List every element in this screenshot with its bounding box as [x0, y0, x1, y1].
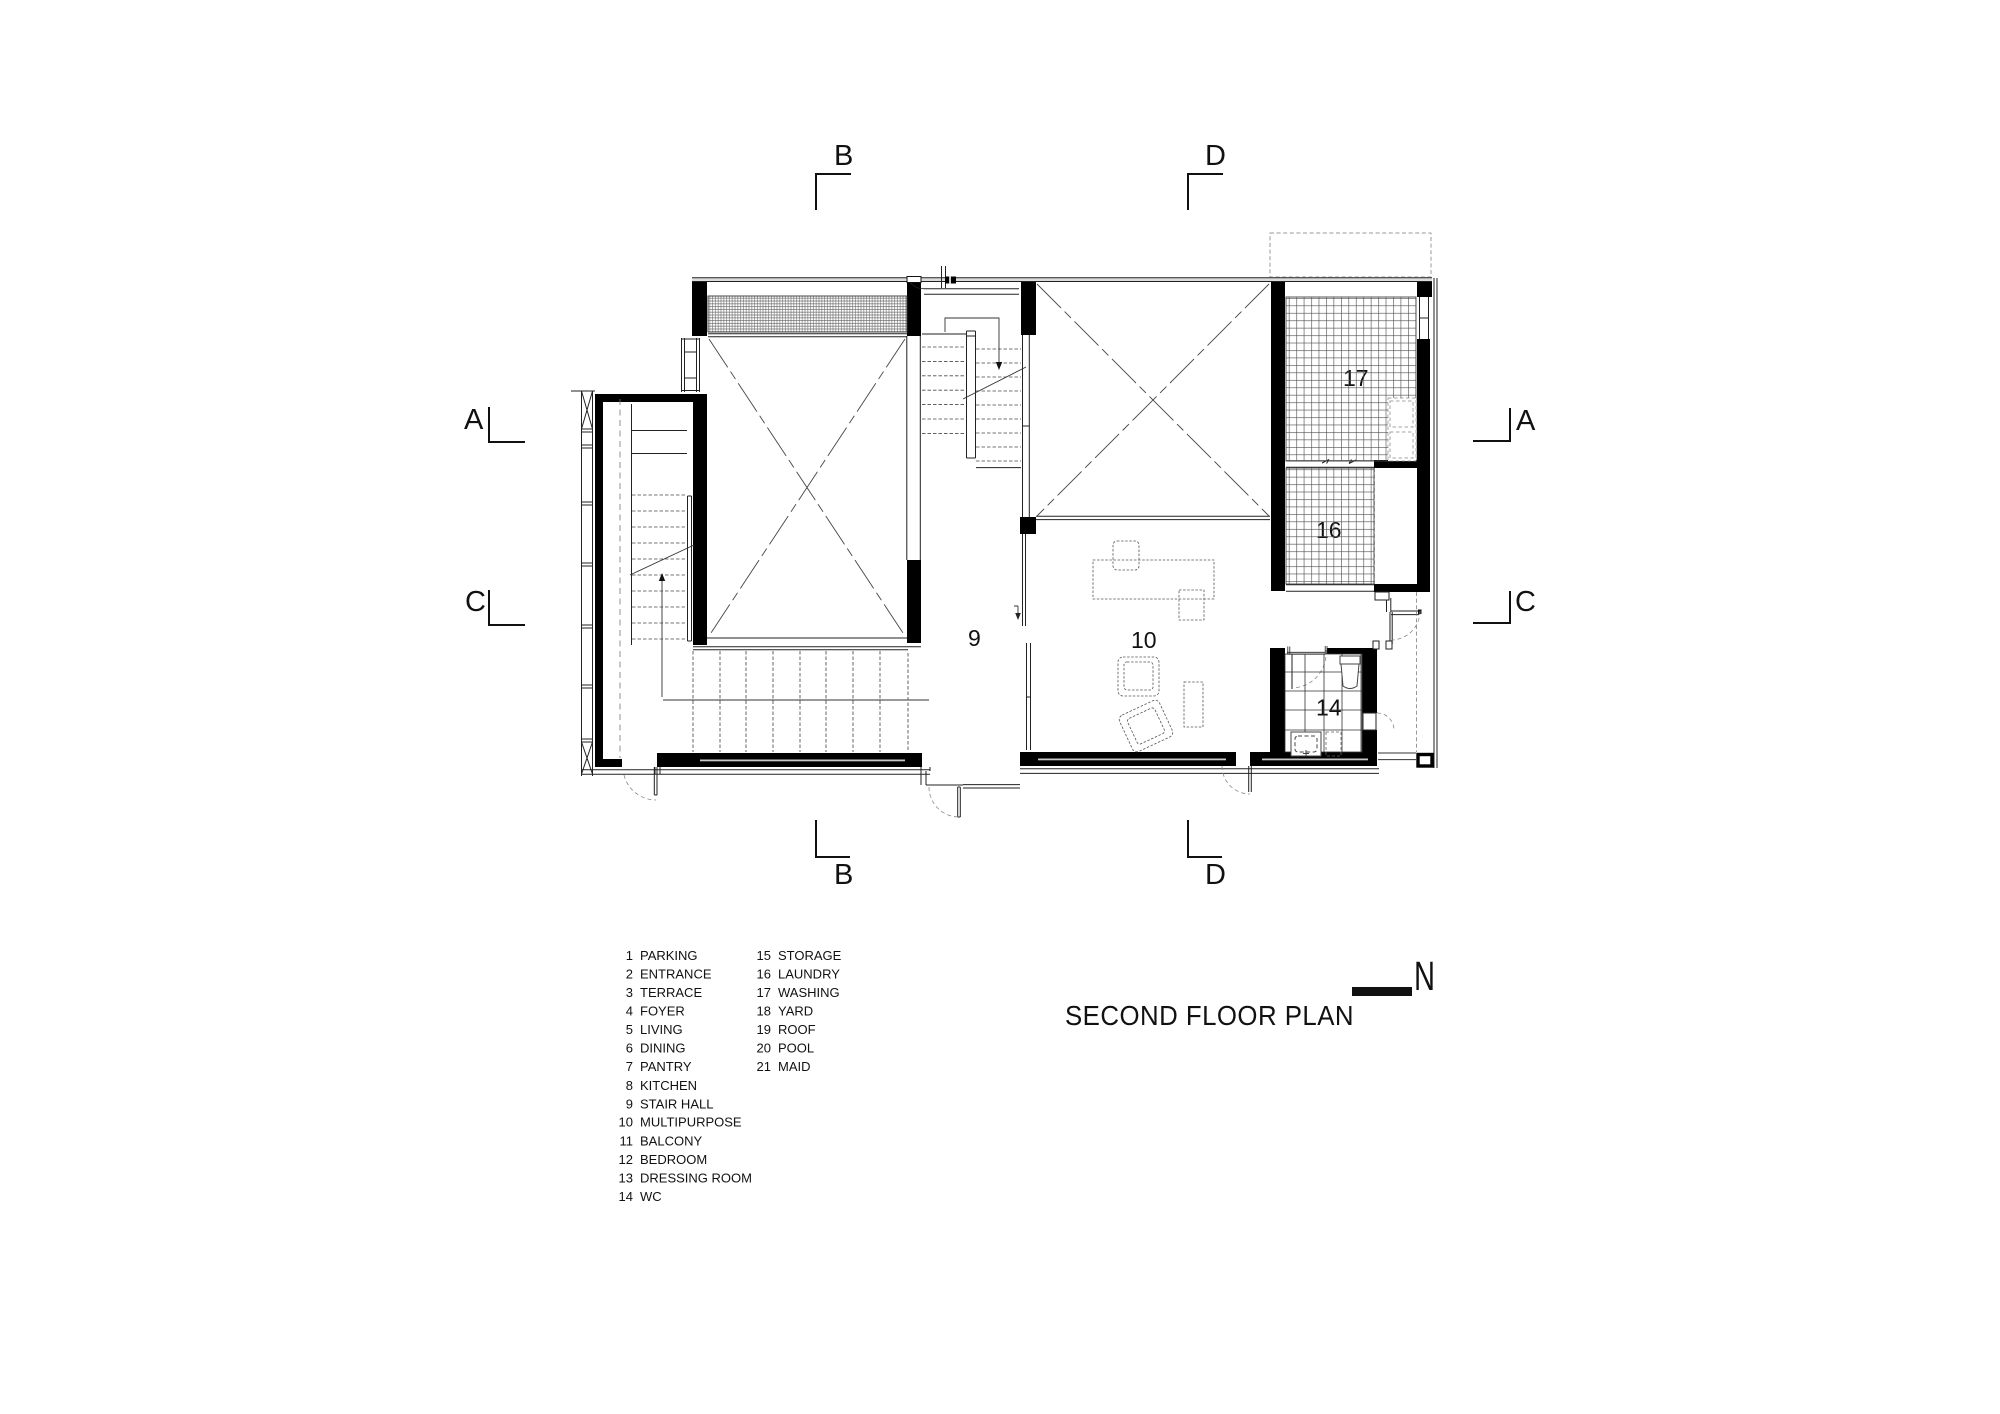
svg-text:C: C [465, 586, 486, 618]
svg-text:21: 21 [757, 1059, 771, 1074]
svg-text:6: 6 [626, 1041, 633, 1056]
svg-text:18: 18 [757, 1004, 771, 1019]
svg-text:BEDROOM: BEDROOM [640, 1152, 707, 1167]
svg-text:D: D [1205, 140, 1226, 172]
svg-text:LIVING: LIVING [640, 1022, 683, 1037]
svg-text:19: 19 [757, 1022, 771, 1037]
svg-text:STAIR HALL: STAIR HALL [640, 1097, 713, 1112]
svg-text:POOL: POOL [778, 1041, 814, 1056]
svg-text:ROOF: ROOF [778, 1022, 816, 1037]
svg-text:A: A [1516, 405, 1536, 437]
svg-text:9: 9 [968, 625, 981, 651]
svg-text:11: 11 [620, 1134, 634, 1149]
svg-text:STORAGE: STORAGE [778, 948, 842, 963]
svg-text:A: A [464, 404, 484, 436]
svg-text:LAUNDRY: LAUNDRY [778, 967, 840, 982]
svg-text:KITCHEN: KITCHEN [640, 1078, 697, 1093]
svg-text:PARKING: PARKING [640, 948, 698, 963]
svg-text:N: N [1414, 953, 1435, 999]
svg-text:1: 1 [626, 948, 633, 963]
svg-text:16: 16 [757, 967, 771, 982]
svg-text:WC: WC [640, 1189, 662, 1204]
svg-text:12: 12 [619, 1152, 633, 1167]
svg-text:3: 3 [626, 985, 633, 1000]
svg-text:15: 15 [757, 948, 771, 963]
svg-text:2: 2 [626, 967, 633, 982]
svg-text:5: 5 [626, 1022, 633, 1037]
svg-text:YARD: YARD [778, 1004, 813, 1019]
svg-text:8: 8 [626, 1078, 633, 1093]
svg-text:BALCONY: BALCONY [640, 1134, 702, 1149]
svg-text:9: 9 [626, 1097, 633, 1112]
svg-text:MAID: MAID [778, 1059, 811, 1074]
svg-text:10: 10 [1131, 627, 1157, 653]
svg-text:MULTIPURPOSE: MULTIPURPOSE [640, 1115, 742, 1130]
svg-text:B: B [834, 859, 853, 891]
svg-text:4: 4 [626, 1004, 633, 1019]
svg-text:SECOND FLOOR PLAN: SECOND FLOOR PLAN [1065, 1000, 1354, 1031]
svg-text:WASHING: WASHING [778, 985, 840, 1000]
svg-text:14: 14 [1316, 695, 1342, 721]
svg-text:ENTRANCE: ENTRANCE [640, 967, 712, 982]
svg-text:B: B [834, 140, 853, 172]
svg-text:10: 10 [619, 1115, 633, 1130]
svg-text:14: 14 [619, 1189, 633, 1204]
svg-text:DRESSING ROOM: DRESSING ROOM [640, 1171, 752, 1186]
svg-text:20: 20 [757, 1041, 771, 1056]
svg-text:PANTRY: PANTRY [640, 1059, 692, 1074]
svg-text:17: 17 [757, 985, 771, 1000]
svg-text:D: D [1205, 859, 1226, 891]
svg-text:13: 13 [619, 1171, 633, 1186]
svg-text:TERRACE: TERRACE [640, 985, 702, 1000]
svg-text:DINING: DINING [640, 1041, 686, 1056]
svg-text:C: C [1515, 586, 1536, 618]
svg-text:FOYER: FOYER [640, 1004, 685, 1019]
svg-text:7: 7 [626, 1059, 633, 1074]
